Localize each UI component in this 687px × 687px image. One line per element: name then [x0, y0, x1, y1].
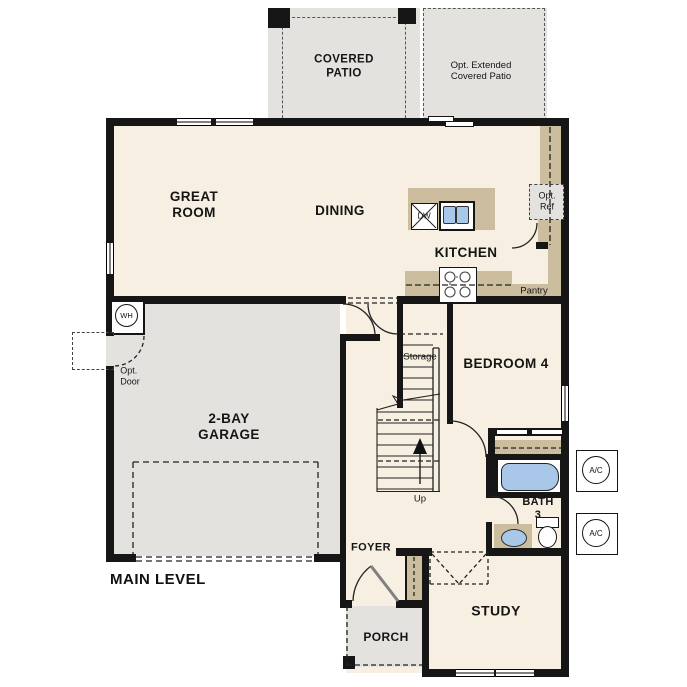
garage-door-arc	[343, 304, 375, 334]
opt-door-arc	[114, 336, 144, 366]
foyer-label: FOYER	[351, 542, 391, 555]
pantry-label: Pantry	[520, 285, 547, 296]
floor-plan: COVERED PATIO Opt. Extended Covered Pati…	[0, 0, 687, 687]
garage-door-dashes	[136, 557, 314, 561]
stair-break-line	[377, 394, 440, 410]
bedroom4-label: BEDROOM 4	[463, 356, 548, 372]
bedroom4-door-arc	[450, 421, 486, 457]
porch-label: PORCH	[363, 630, 408, 644]
front-door-leaf	[371, 566, 398, 601]
stair-header-dashes	[378, 420, 440, 461]
garage-label: 2-BAY GARAGE	[198, 411, 260, 443]
up-label: Up	[414, 493, 426, 504]
pantry-door-arc	[512, 223, 537, 248]
dining-label: DINING	[315, 203, 365, 219]
garage-track-dashes	[133, 462, 318, 554]
cased-opening-dashes	[348, 298, 397, 303]
stair-up-arrow-head	[413, 438, 427, 454]
storage-label: Storage	[403, 351, 436, 362]
hall-door-arc	[368, 304, 398, 334]
kitchen-label: KITCHEN	[435, 245, 498, 261]
front-door-arc	[353, 566, 371, 601]
bath-door-arc	[490, 496, 518, 524]
study-double-door-dashes	[430, 552, 488, 584]
stove-burners	[445, 272, 470, 297]
great-room-label: GREAT ROOM	[170, 189, 218, 221]
plan-linework	[0, 0, 687, 687]
study-label: STUDY	[471, 603, 520, 620]
bath-label: BATH 3	[522, 496, 553, 522]
study-double-door-leaves	[432, 554, 486, 584]
main-level-label: MAIN LEVEL	[110, 571, 206, 588]
dishwasher-x	[412, 204, 436, 228]
